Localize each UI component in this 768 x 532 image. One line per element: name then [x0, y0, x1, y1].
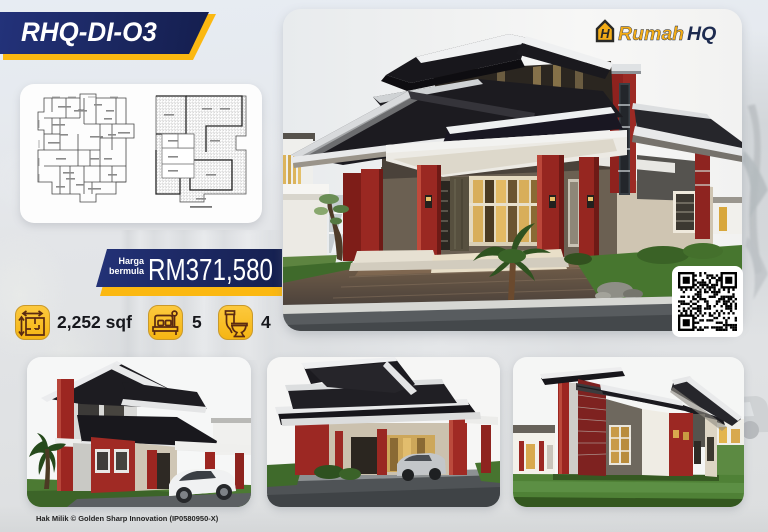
svg-text:HQ: HQ [687, 23, 716, 45]
svg-text:H: H [600, 26, 610, 41]
svg-text:Rumah: Rumah [618, 23, 684, 45]
